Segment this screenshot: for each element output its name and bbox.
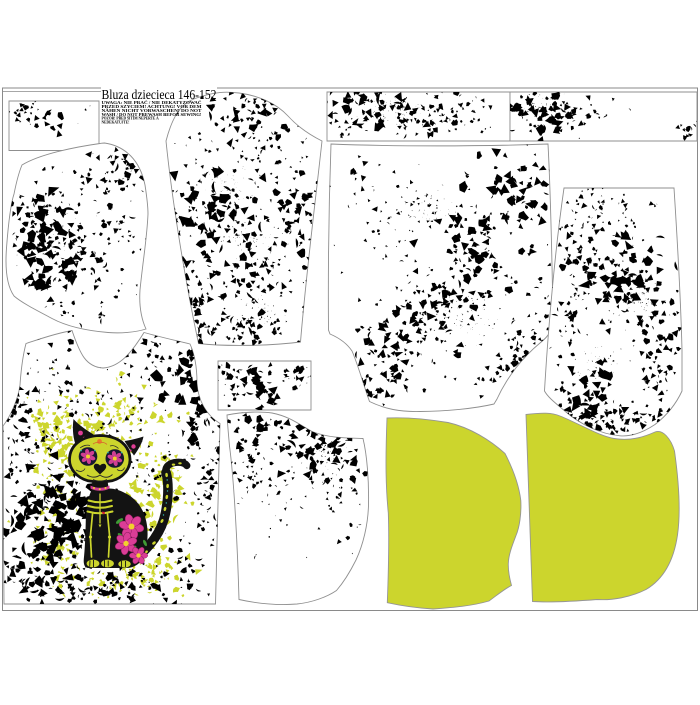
svg-text:Bluza dziecieca 146-152: Bluza dziecieca 146-152 bbox=[102, 87, 217, 102]
svg-text:NEDEKATUJTE!: NEDEKATUJTE! bbox=[102, 121, 130, 125]
